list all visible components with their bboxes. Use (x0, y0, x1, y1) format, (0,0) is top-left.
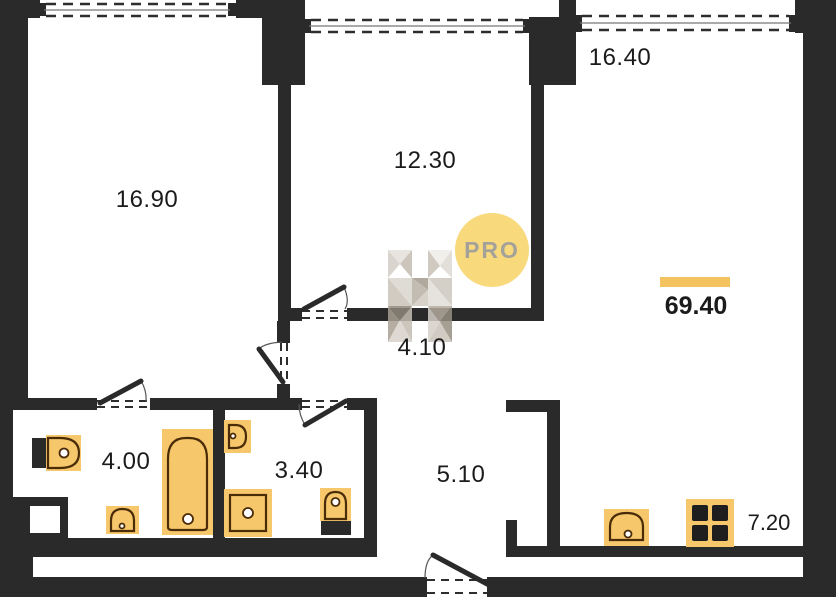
shower-tray-icon (224, 489, 272, 537)
room-area-16-40: 16.40 (589, 44, 652, 71)
wall-segment (364, 410, 377, 557)
wall-segment (487, 577, 836, 597)
room-area-5-10: 5.10 (437, 461, 486, 488)
wall-segment (0, 0, 40, 18)
wall-segment (13, 398, 97, 410)
wall-segment (506, 400, 560, 412)
room-area-12-30: 12.30 (394, 147, 457, 174)
toilet-cistern (32, 438, 47, 468)
brand-watermark-icon (388, 250, 452, 342)
floor-plan: PRO 16.90 12.30 16.40 4.10 4.00 3.40 5.1… (0, 0, 840, 600)
door-room-12-30 (302, 287, 347, 318)
wall-segment (506, 546, 803, 557)
wall-segment (278, 308, 302, 321)
wall-segment (547, 400, 560, 557)
room-area-3-40: 3.40 (275, 457, 324, 484)
room-area-4-00: 4.00 (102, 448, 151, 475)
wall-segment (347, 398, 377, 410)
door-bathroom-3-40 (299, 401, 347, 425)
wall-pillar (236, 0, 305, 85)
duct-shaft-opening (30, 506, 60, 533)
wall-segment (0, 577, 427, 597)
pro-badge: PRO (455, 213, 529, 287)
window-right (580, 16, 791, 30)
wall-segment (13, 538, 377, 557)
total-area-label: 69.40 (665, 292, 728, 320)
toilet-icon (320, 488, 351, 521)
wall-segment (278, 85, 291, 308)
door-bathroom-4-00 (97, 381, 150, 407)
door-room-16-90 (259, 342, 287, 384)
wall-segment (0, 0, 28, 398)
door-jamb (418, 577, 427, 597)
wall-segment (213, 398, 225, 557)
sink-icon (106, 506, 139, 534)
stove-icon (686, 499, 734, 547)
wall-segment (150, 398, 302, 410)
wall-segment (531, 85, 544, 321)
pro-badge-text: PRO (464, 237, 520, 263)
wall-segment (803, 0, 836, 597)
sink-icon (224, 420, 251, 453)
wall-segment (277, 321, 290, 343)
room-area-4-10: 4.10 (398, 334, 447, 361)
toilet-tank (321, 519, 351, 535)
window-middle (309, 20, 525, 32)
room-area-16-90: 16.90 (116, 186, 179, 213)
window-left (44, 4, 230, 16)
toilet-icon (46, 435, 81, 471)
wall-pillar (529, 0, 576, 85)
total-area-underline (660, 277, 730, 287)
floor-plan-canvas: PRO 16.90 12.30 16.40 4.10 4.00 3.40 5.1… (0, 0, 840, 600)
entrance-door (425, 555, 489, 593)
kitchen-sink-icon (604, 509, 649, 546)
room-area-7-20: 7.20 (748, 510, 791, 535)
bathtub-icon (162, 429, 213, 535)
